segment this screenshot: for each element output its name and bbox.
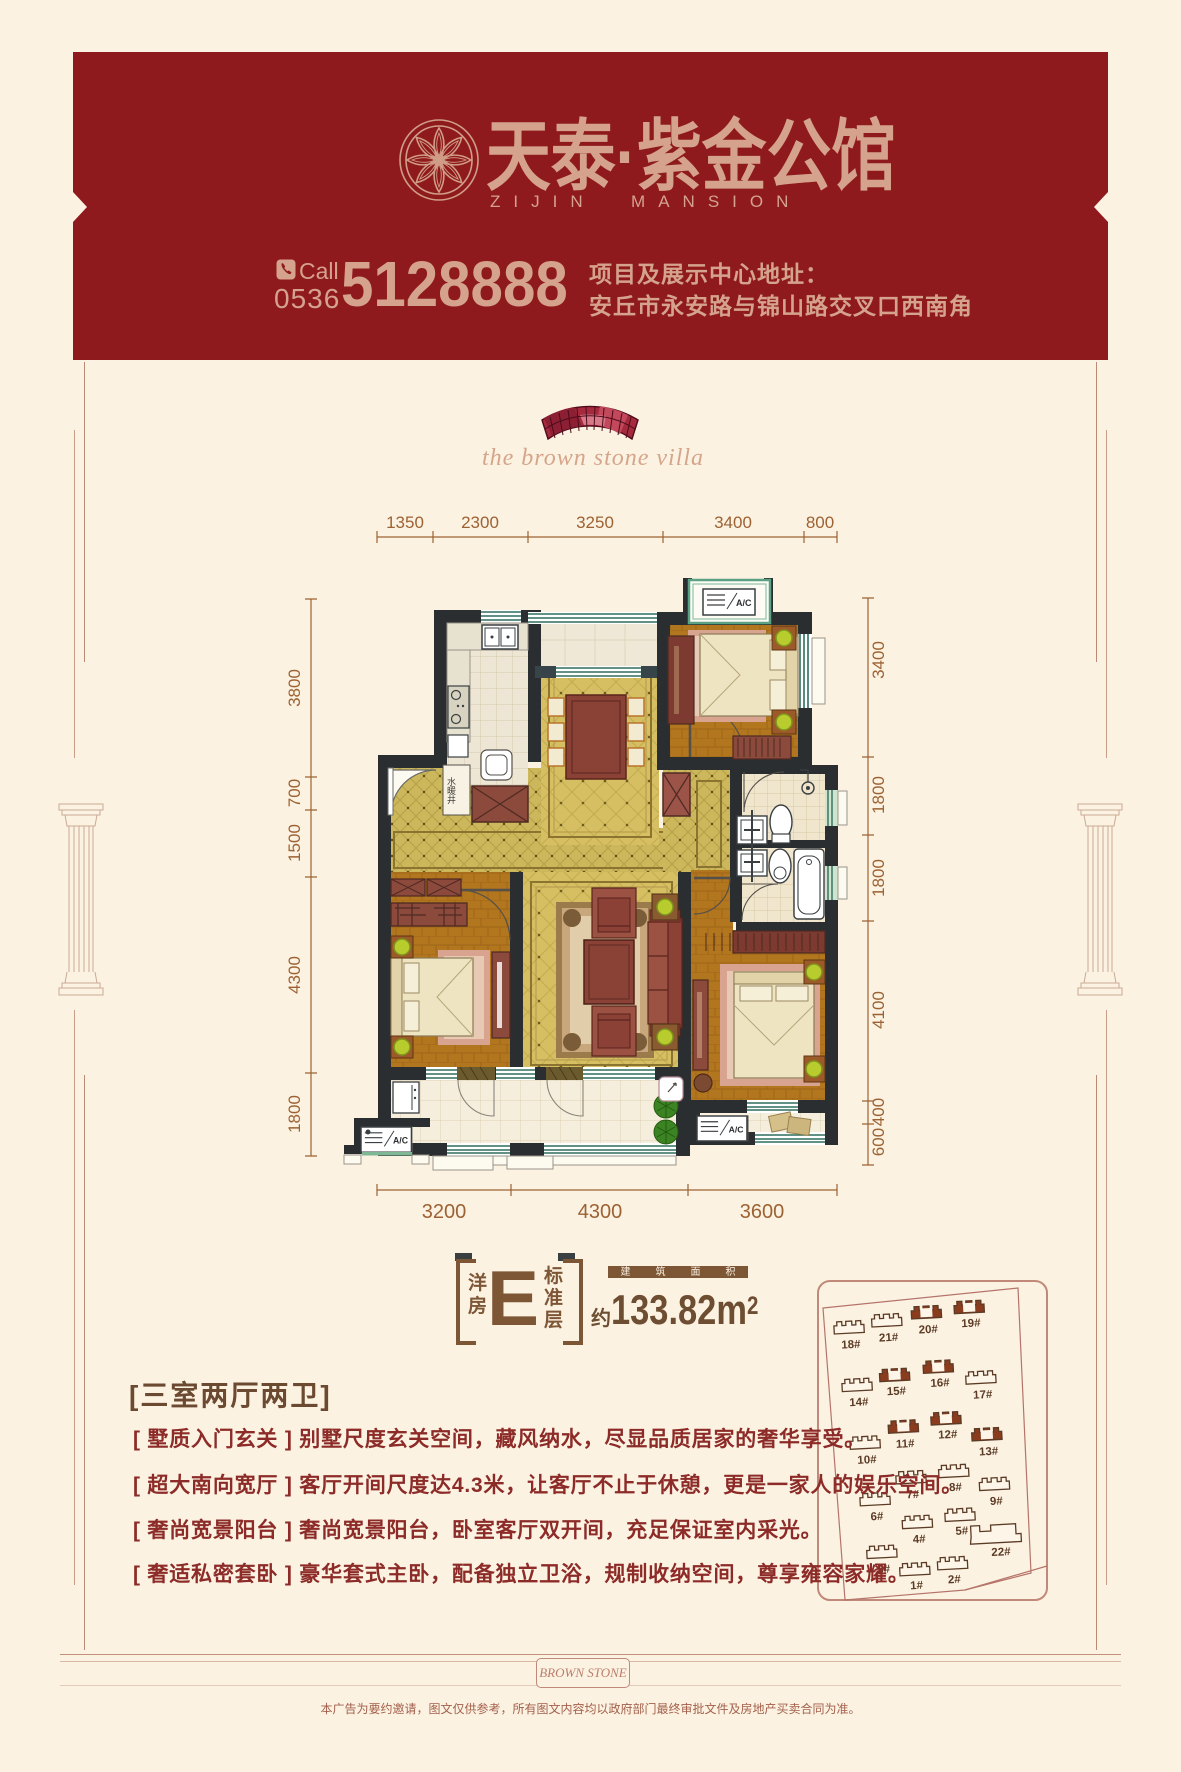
svg-text:19#: 19# [961, 1317, 981, 1330]
svg-text:3400: 3400 [714, 513, 752, 532]
svg-text:9#: 9# [990, 1495, 1004, 1508]
svg-text:5#: 5# [955, 1525, 969, 1538]
svg-text:2#: 2# [948, 1574, 962, 1587]
svg-text:18#: 18# [841, 1339, 861, 1352]
svg-text:14#: 14# [849, 1396, 869, 1409]
svg-text:1800: 1800 [869, 776, 888, 814]
svg-text:4100: 4100 [869, 991, 888, 1029]
svg-text:700: 700 [285, 779, 304, 807]
svg-text:600: 600 [869, 1128, 888, 1156]
svg-text:13#: 13# [979, 1446, 999, 1459]
svg-text:6#: 6# [870, 1511, 884, 1524]
svg-text:16#: 16# [930, 1377, 950, 1390]
svg-text:400: 400 [869, 1098, 888, 1126]
svg-text:1800: 1800 [285, 1095, 304, 1133]
svg-text:3250: 3250 [576, 513, 614, 532]
svg-text:3600: 3600 [740, 1201, 785, 1223]
svg-text:22#: 22# [991, 1546, 1011, 1559]
svg-text:1#: 1# [910, 1580, 924, 1593]
svg-text:2300: 2300 [461, 513, 499, 532]
svg-text:1800: 1800 [869, 859, 888, 897]
svg-text:11#: 11# [896, 1438, 916, 1451]
svg-text:12#: 12# [938, 1429, 958, 1442]
svg-text:3400: 3400 [869, 641, 888, 679]
svg-text:20#: 20# [918, 1324, 938, 1337]
svg-text:4300: 4300 [578, 1201, 623, 1223]
svg-text:4#: 4# [913, 1533, 927, 1546]
svg-text:15#: 15# [887, 1385, 907, 1398]
svg-text:1500: 1500 [285, 824, 304, 862]
svg-text:3200: 3200 [422, 1201, 467, 1223]
svg-text:17#: 17# [973, 1389, 993, 1402]
svg-text:10#: 10# [857, 1454, 877, 1467]
svg-text:4300: 4300 [285, 956, 304, 994]
svg-text:21#: 21# [879, 1332, 899, 1345]
svg-text:3800: 3800 [285, 669, 304, 707]
svg-text:800: 800 [806, 513, 834, 532]
svg-text:1350: 1350 [386, 513, 424, 532]
svg-text:水暖井: 水暖井 [446, 776, 456, 805]
